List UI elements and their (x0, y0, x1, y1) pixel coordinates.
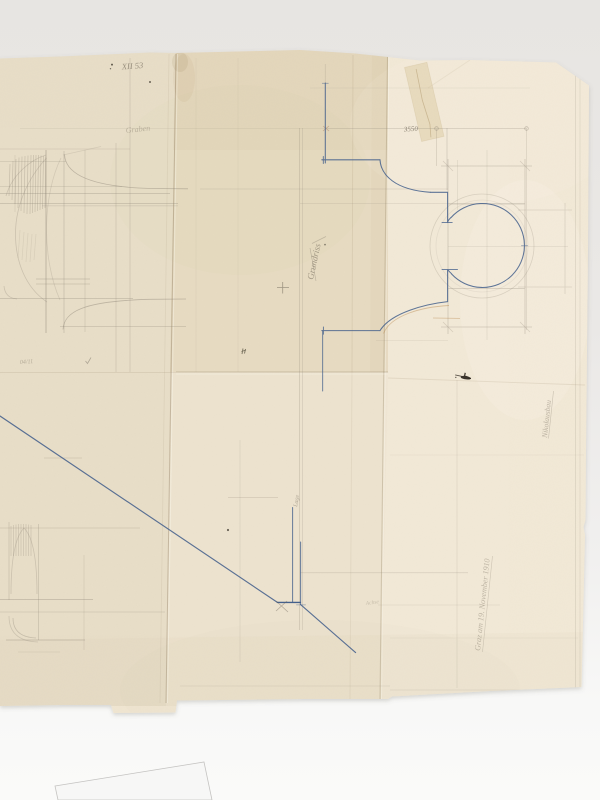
svg-text:3550: 3550 (403, 125, 419, 134)
svg-text:04/11: 04/11 (20, 358, 34, 366)
svg-text:XII 53: XII 53 (120, 60, 143, 72)
